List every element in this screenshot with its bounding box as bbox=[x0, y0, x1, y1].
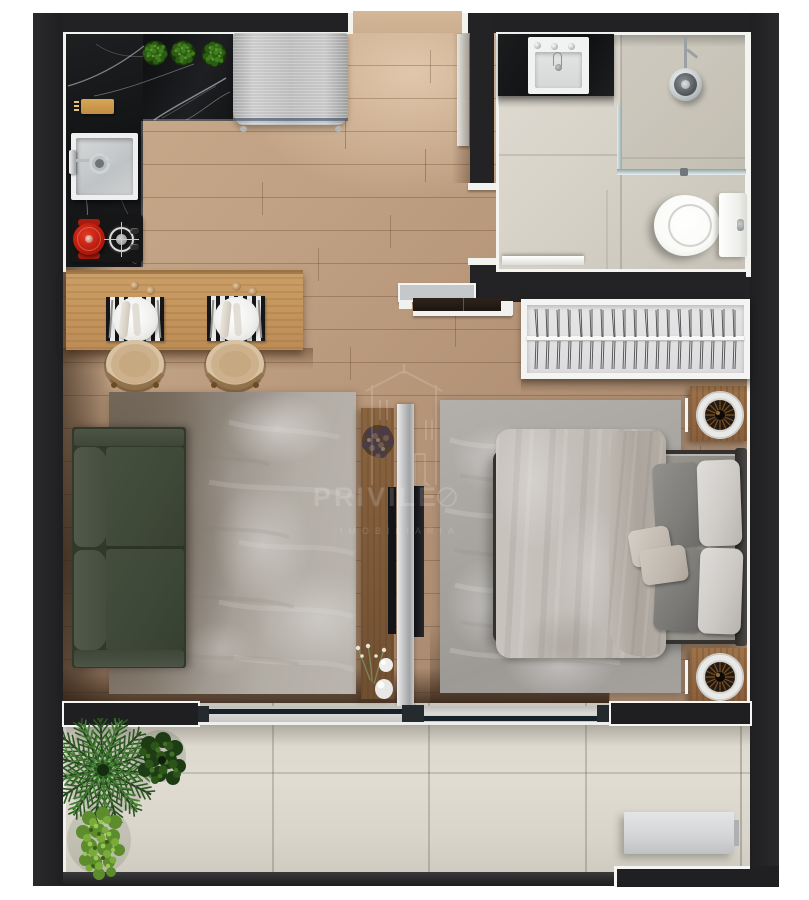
svg-text:PRIVILÈ: PRIVILÈ bbox=[313, 481, 439, 512]
svg-text:IMOBILIARIA: IMOBILIARIA bbox=[340, 526, 460, 536]
